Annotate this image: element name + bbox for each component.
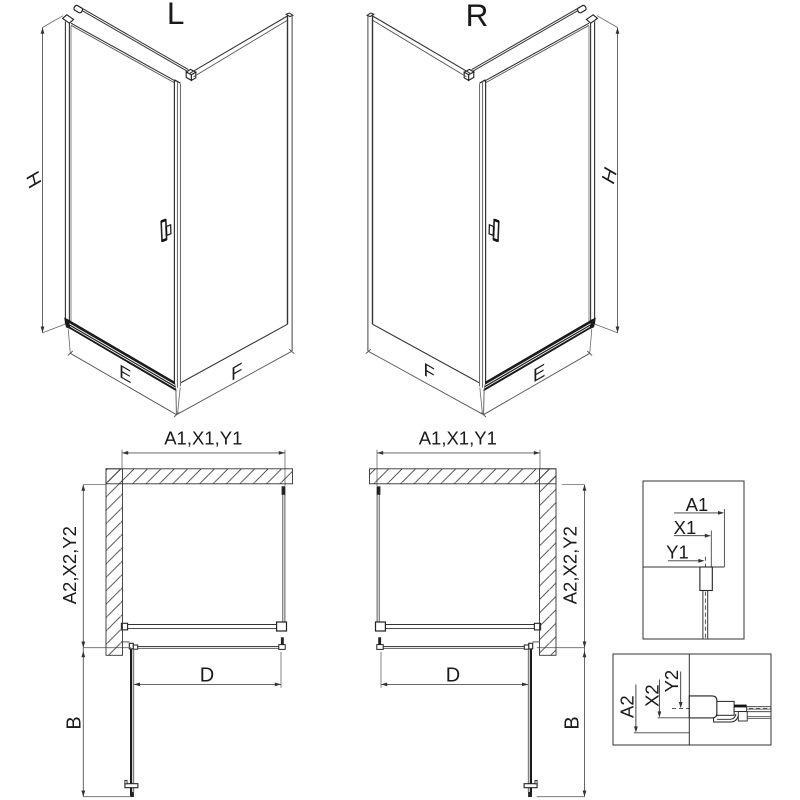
svg-text:Y2: Y2 [661,670,682,693]
svg-text:A2: A2 [617,695,638,718]
svg-text:Y1: Y1 [666,542,689,563]
svg-text:A1: A1 [686,494,709,515]
svg-text:B: B [562,716,584,729]
svg-text:D: D [200,664,214,686]
svg-text:X2: X2 [642,684,663,707]
svg-text:D: D [446,664,460,686]
svg-text:A2,X2,Y2: A2,X2,Y2 [560,526,581,604]
svg-text:B: B [63,716,85,729]
svg-text:A1,X1,Y1: A1,X1,Y1 [164,427,242,448]
svg-text:A1,X1,Y1: A1,X1,Y1 [419,427,497,448]
svg-text:A2,X2,Y2: A2,X2,Y2 [59,526,80,604]
svg-text:L: L [167,0,185,31]
svg-text:R: R [466,0,489,33]
svg-text:X1: X1 [674,517,697,538]
